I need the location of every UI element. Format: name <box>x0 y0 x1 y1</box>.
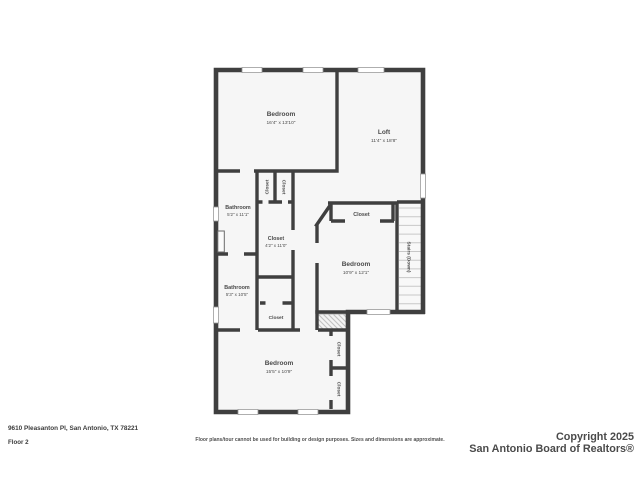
floor-plan-page: Bedroom 16'4" x 13'10" Loft 11'4" x 18'8… <box>0 0 640 480</box>
room-name: Closet <box>268 236 285 242</box>
stairs-label: Stairs (Down) <box>406 242 412 273</box>
room-name: Bedroom <box>267 111 296 118</box>
bathroom-fixture <box>218 231 225 252</box>
room-dims: 10'9" x 12'1" <box>343 270 370 276</box>
closet-small-left-label: Closet <box>265 179 271 194</box>
disclaimer-text: Floor plans/tour cannot be used for buil… <box>195 437 445 443</box>
window <box>213 307 218 323</box>
room-name: Bedroom <box>342 261 371 268</box>
room-dims: 11'4" x 18'8" <box>371 138 397 144</box>
room-dims: 5'2" x 11'1" <box>227 212 249 217</box>
opening <box>367 310 390 315</box>
closet-bottom-lower-label: Closet <box>336 382 342 397</box>
window <box>298 409 318 414</box>
window <box>358 67 384 72</box>
room-dims: 15'5" x 10'9" <box>266 369 293 375</box>
window <box>420 174 425 198</box>
hatched-area <box>318 314 348 329</box>
copyright-line2: San Antonio Board of Realtors® <box>469 443 634 455</box>
window <box>242 67 262 72</box>
window <box>238 409 258 414</box>
window <box>303 67 323 72</box>
closet-hall-label: Closet <box>269 315 284 321</box>
window <box>213 207 218 221</box>
floor-area <box>216 70 423 412</box>
room-dims: 4'2" x 11'0" <box>265 243 287 248</box>
floor-label: Floor 2 <box>8 439 29 446</box>
room-name: Bedroom <box>265 360 294 367</box>
closet-small-right-label: Closet <box>281 180 287 195</box>
room-name: Bathroom <box>224 285 250 291</box>
room-dims: 5'3" x 10'5" <box>226 292 249 297</box>
copyright-line1: Copyright 2025 <box>556 431 634 443</box>
room-dims: 16'4" x 13'10" <box>267 120 296 126</box>
room-name: Bathroom <box>225 205 251 211</box>
property-address: 9610 Pleasanton Pl, San Antonio, TX 7822… <box>8 425 139 432</box>
room-name: Loft <box>378 129 391 136</box>
closet-bottom-upper-label: Closet <box>336 342 342 357</box>
closet-mid-bedroom-label: Closet <box>353 212 370 218</box>
floor-plan-canvas: Bedroom 16'4" x 13'10" Loft 11'4" x 18'8… <box>0 0 640 480</box>
